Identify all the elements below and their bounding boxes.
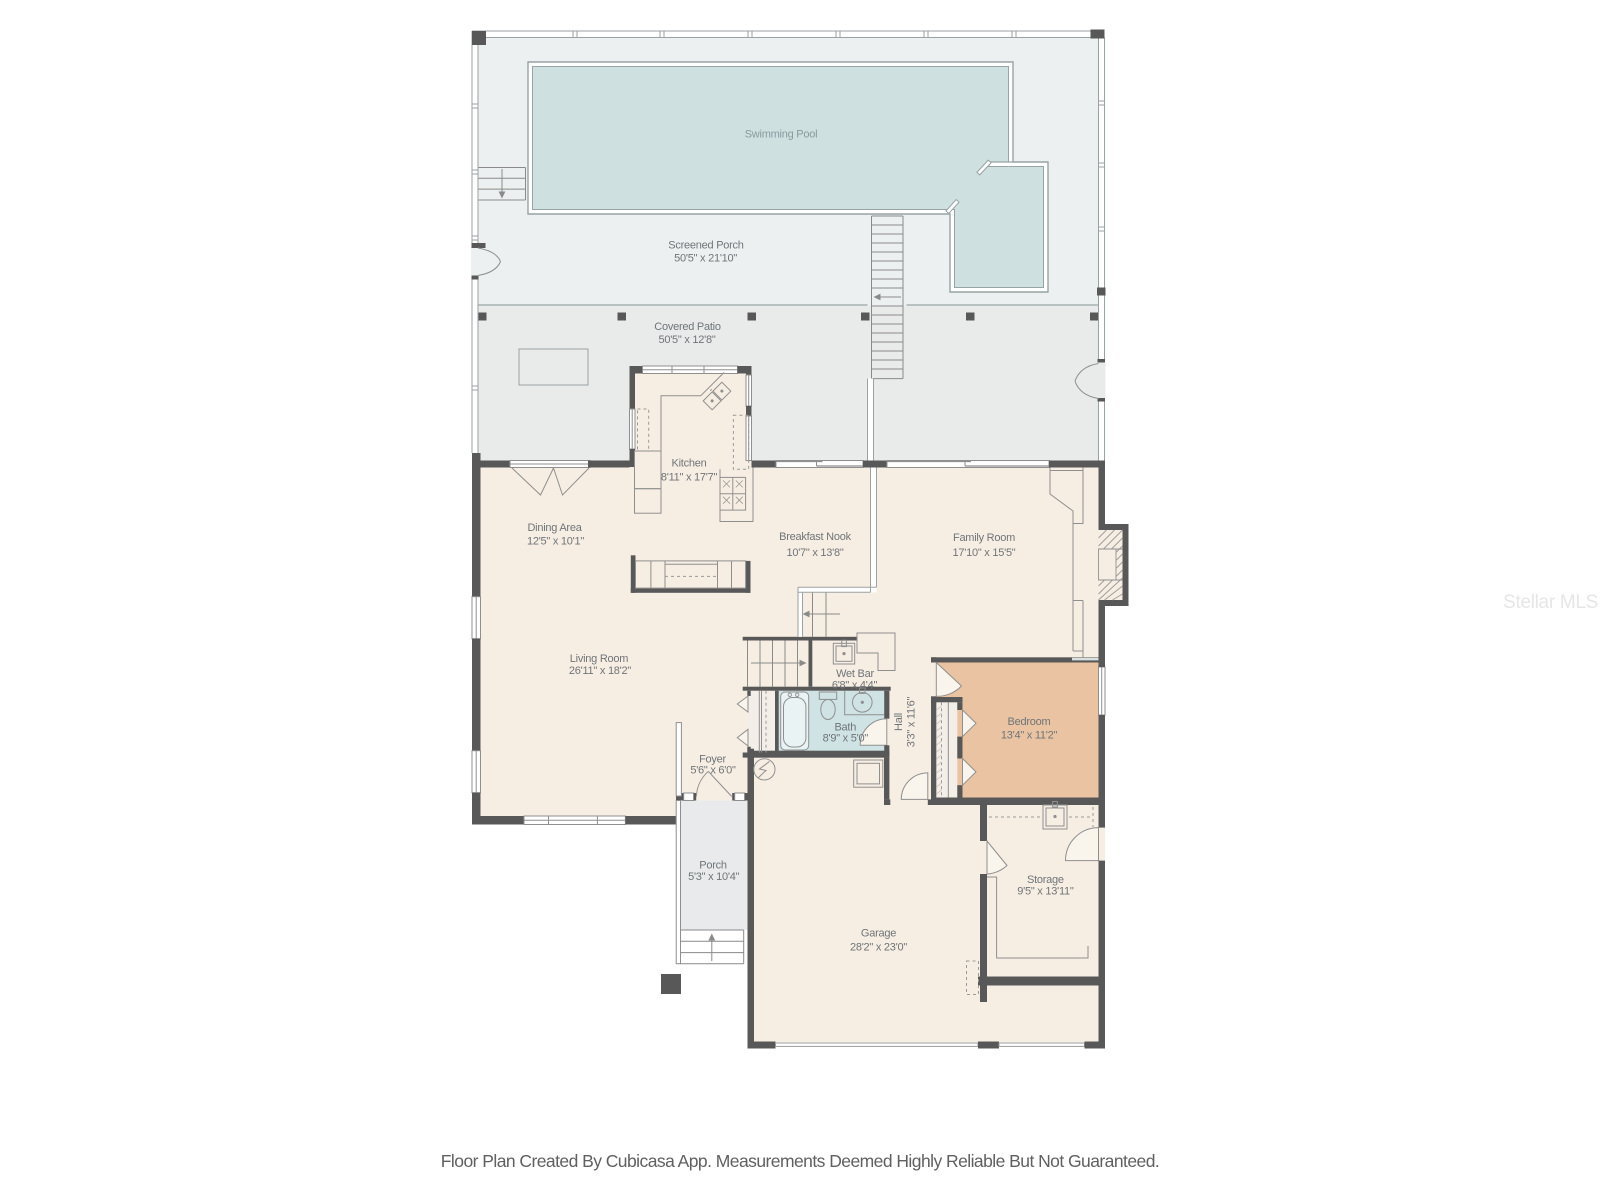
svg-text:50'5" x 21'10": 50'5" x 21'10": [674, 253, 737, 265]
svg-text:Bedroom: Bedroom: [1008, 716, 1051, 728]
svg-text:Bath: Bath: [834, 722, 856, 734]
svg-text:6'8" x 4'4": 6'8" x 4'4": [832, 680, 878, 692]
svg-text:17'10" x 15'5": 17'10" x 15'5": [953, 547, 1016, 559]
svg-text:5'3" x 10'4": 5'3" x 10'4": [688, 871, 740, 883]
svg-text:Covered Patio: Covered Patio: [654, 321, 721, 333]
svg-text:3'3" x 11'6": 3'3" x 11'6": [906, 696, 918, 747]
svg-text:Porch: Porch: [699, 859, 727, 871]
svg-text:Hall: Hall: [893, 713, 905, 731]
svg-text:Kitchen: Kitchen: [672, 458, 707, 470]
svg-text:Breakfast Nook: Breakfast Nook: [779, 531, 851, 543]
svg-text:Garage: Garage: [861, 928, 896, 940]
svg-text:28'2" x 23'0": 28'2" x 23'0": [850, 942, 907, 954]
svg-text:Floor Plan Created By Cubicasa: Floor Plan Created By Cubicasa App. Meas…: [441, 1151, 1159, 1171]
svg-text:10'7" x 13'8": 10'7" x 13'8": [786, 547, 843, 559]
svg-text:5'6" x 6'0": 5'6" x 6'0": [690, 765, 736, 777]
svg-text:50'5" x 12'8": 50'5" x 12'8": [658, 334, 715, 346]
svg-text:8'9" x 5'0": 8'9" x 5'0": [823, 733, 869, 745]
svg-text:13'4" x 11'2": 13'4" x 11'2": [1001, 730, 1058, 742]
svg-text:Swimming Pool: Swimming Pool: [745, 129, 818, 141]
svg-text:Dining Area: Dining Area: [527, 522, 582, 534]
svg-text:9'5" x 13'11": 9'5" x 13'11": [1017, 886, 1074, 898]
svg-text:Family Room: Family Room: [953, 532, 1015, 544]
svg-text:12'5" x 10'1": 12'5" x 10'1": [527, 536, 584, 548]
svg-text:8'11" x 17'7": 8'11" x 17'7": [661, 472, 718, 484]
svg-text:Storage: Storage: [1027, 874, 1064, 886]
svg-text:Living Room: Living Room: [570, 653, 628, 665]
svg-text:Stellar MLS: Stellar MLS: [1503, 592, 1598, 613]
svg-text:Screened Porch: Screened Porch: [668, 240, 744, 252]
svg-text:26'11" x 18'2": 26'11" x 18'2": [569, 665, 631, 677]
svg-text:Wet Bar: Wet Bar: [836, 668, 874, 680]
